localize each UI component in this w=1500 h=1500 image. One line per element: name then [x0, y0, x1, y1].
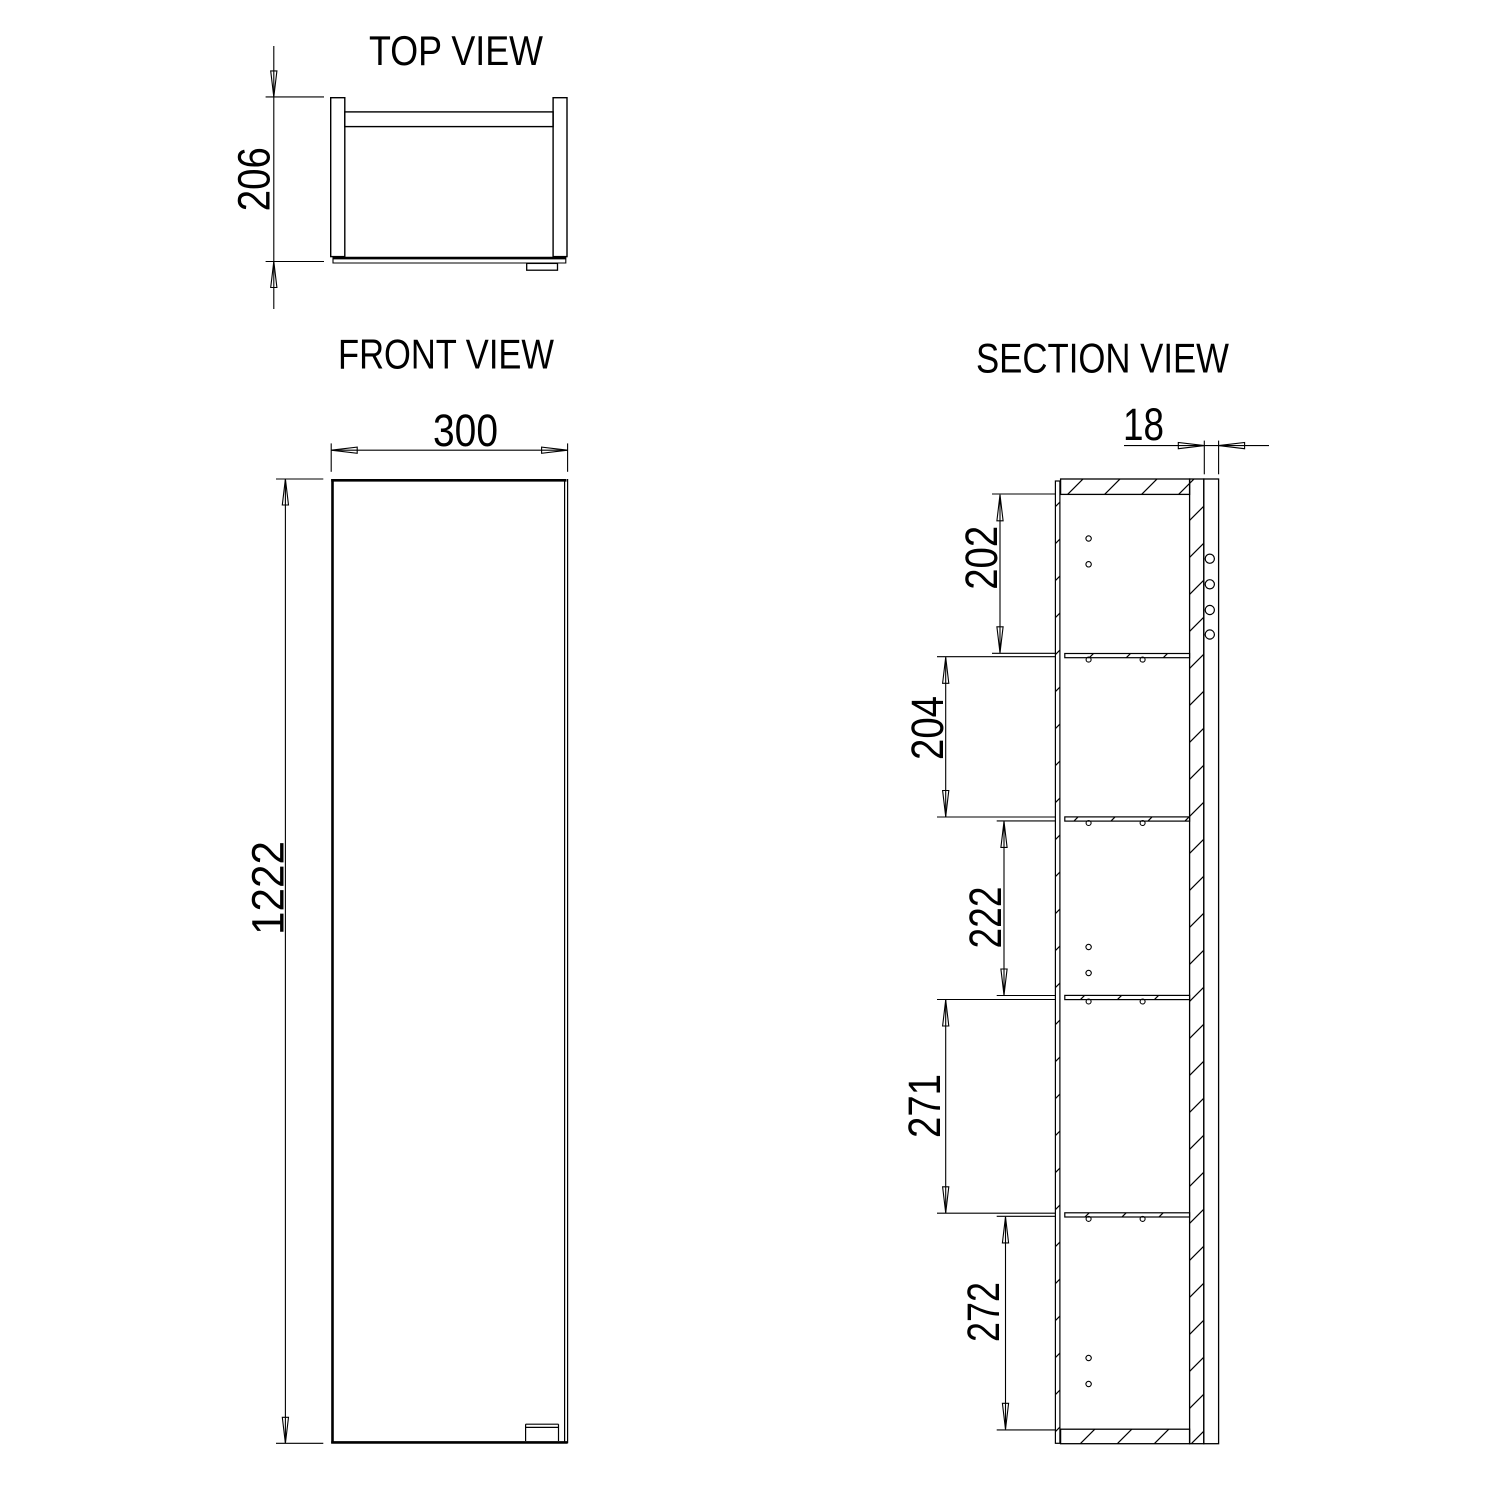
svg-text:SECTION VIEW: SECTION VIEW	[976, 335, 1229, 382]
svg-text:18: 18	[1123, 399, 1164, 450]
svg-text:272: 272	[958, 1282, 1009, 1342]
svg-text:204: 204	[902, 696, 953, 760]
svg-text:FRONT VIEW: FRONT VIEW	[338, 331, 554, 378]
svg-text:1222: 1222	[243, 841, 294, 935]
svg-text:222: 222	[960, 887, 1011, 949]
svg-text:271: 271	[899, 1074, 950, 1138]
svg-text:300: 300	[433, 405, 498, 456]
svg-text:TOP VIEW: TOP VIEW	[369, 27, 543, 74]
svg-text:206: 206	[229, 147, 280, 211]
svg-text:202: 202	[956, 526, 1007, 590]
